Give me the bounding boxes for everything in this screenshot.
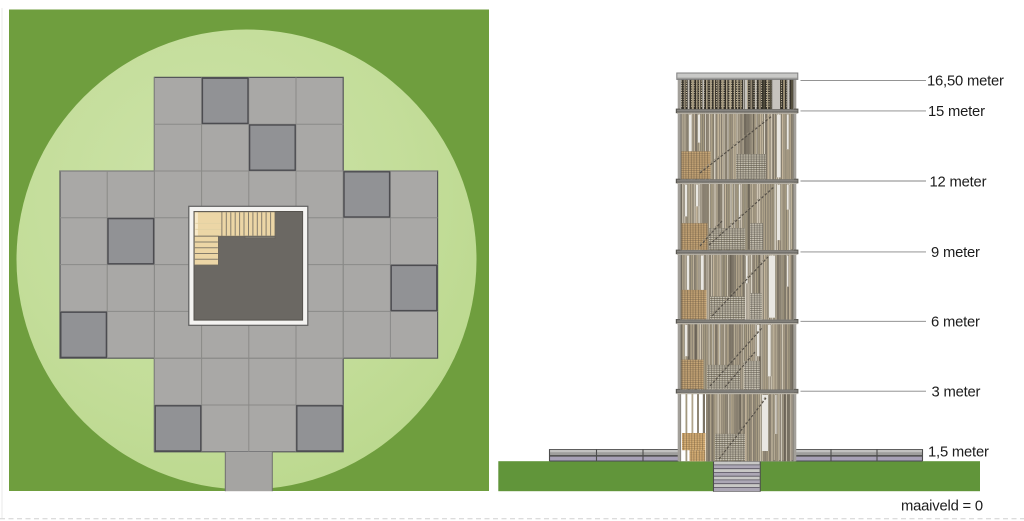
svg-text:15 meter: 15 meter: [928, 104, 985, 120]
svg-text:3 meter: 3 meter: [932, 385, 981, 401]
svg-text:6 meter: 6 meter: [931, 315, 980, 331]
svg-text:9 meter: 9 meter: [931, 245, 980, 261]
svg-text:16,50 meter: 16,50 meter: [927, 74, 1004, 90]
svg-text:1,5 meter: 1,5 meter: [928, 445, 989, 461]
svg-text:12 meter: 12 meter: [930, 174, 987, 190]
svg-text:maaiveld = 0: maaiveld = 0: [901, 499, 983, 515]
